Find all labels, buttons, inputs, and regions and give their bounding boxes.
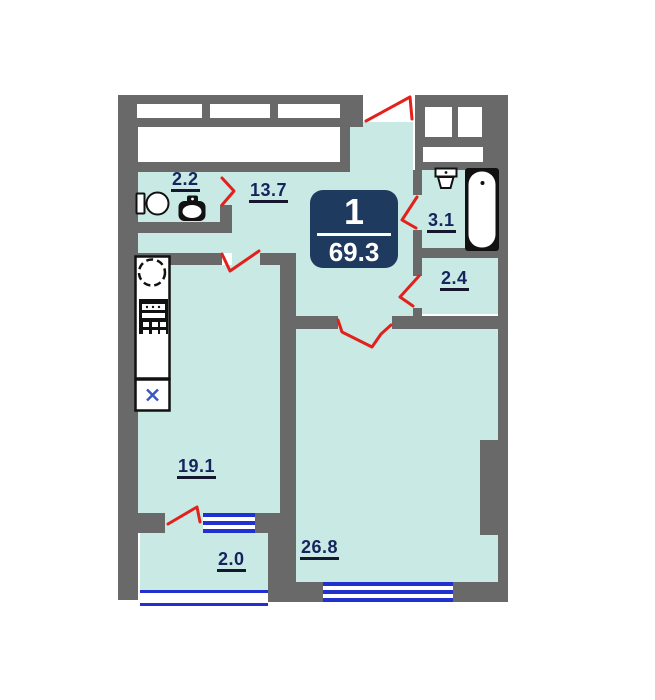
toilet-area-label: 2.2 xyxy=(171,170,200,192)
wall-bath-storage xyxy=(413,248,499,258)
facade-window-slot-2 xyxy=(210,104,270,118)
wall-kitchen-top-left xyxy=(118,253,222,265)
bathroom-door-gap xyxy=(413,195,422,230)
balcony-door-gap xyxy=(165,513,203,533)
kitchen-window xyxy=(203,513,255,533)
kitchen-area-label: 19.1 xyxy=(177,457,216,479)
entry-door-swing xyxy=(366,97,412,121)
wall-hall-bottom-right xyxy=(392,316,499,329)
bathroom-area-label: 3.1 xyxy=(427,211,456,233)
entry-nook-area xyxy=(350,122,413,172)
toilet-door-gap xyxy=(220,172,232,205)
living-room-window xyxy=(323,582,453,602)
wall-kitchen-bottom-right xyxy=(255,513,280,533)
bathroom-area xyxy=(422,170,499,248)
wall-toilet-stub xyxy=(220,205,232,233)
badge-divider xyxy=(317,233,391,236)
floor-plan: 2.2 13.7 3.1 2.4 19.1 26.8 2.0 1 69.3 xyxy=(0,0,655,700)
vent-shaft-1 xyxy=(425,107,452,137)
balcony-area xyxy=(140,533,268,590)
hallway-area-label: 13.7 xyxy=(249,181,288,203)
unit-total-area: 69.3 xyxy=(329,239,380,265)
living-room-area-label: 26.8 xyxy=(300,538,339,560)
vent-shaft-2 xyxy=(458,107,482,137)
balcony-glazing xyxy=(140,590,268,606)
wall-right-pier xyxy=(480,440,508,535)
storage-door-gap xyxy=(413,276,422,308)
facade-window-slot-3 xyxy=(278,104,340,118)
storage-area-label: 2.4 xyxy=(440,269,469,291)
living-door-gap xyxy=(338,316,392,329)
built-in-niche xyxy=(138,127,340,162)
unit-room-count: 1 xyxy=(344,194,364,230)
wall-niche-bottom xyxy=(118,162,350,172)
hallway-strip-area xyxy=(138,233,232,253)
wall-kitchen-living xyxy=(280,253,296,533)
wall-kitchen-bottom-left xyxy=(118,513,165,533)
wall-hall-bath-1 xyxy=(413,170,422,195)
facade-window-slot-1 xyxy=(137,104,202,118)
unit-badge: 1 69.3 xyxy=(310,190,398,268)
vent-shaft-3 xyxy=(423,147,483,162)
wall-toilet-bottom xyxy=(118,222,232,233)
balcony-area-label: 2.0 xyxy=(217,550,246,572)
